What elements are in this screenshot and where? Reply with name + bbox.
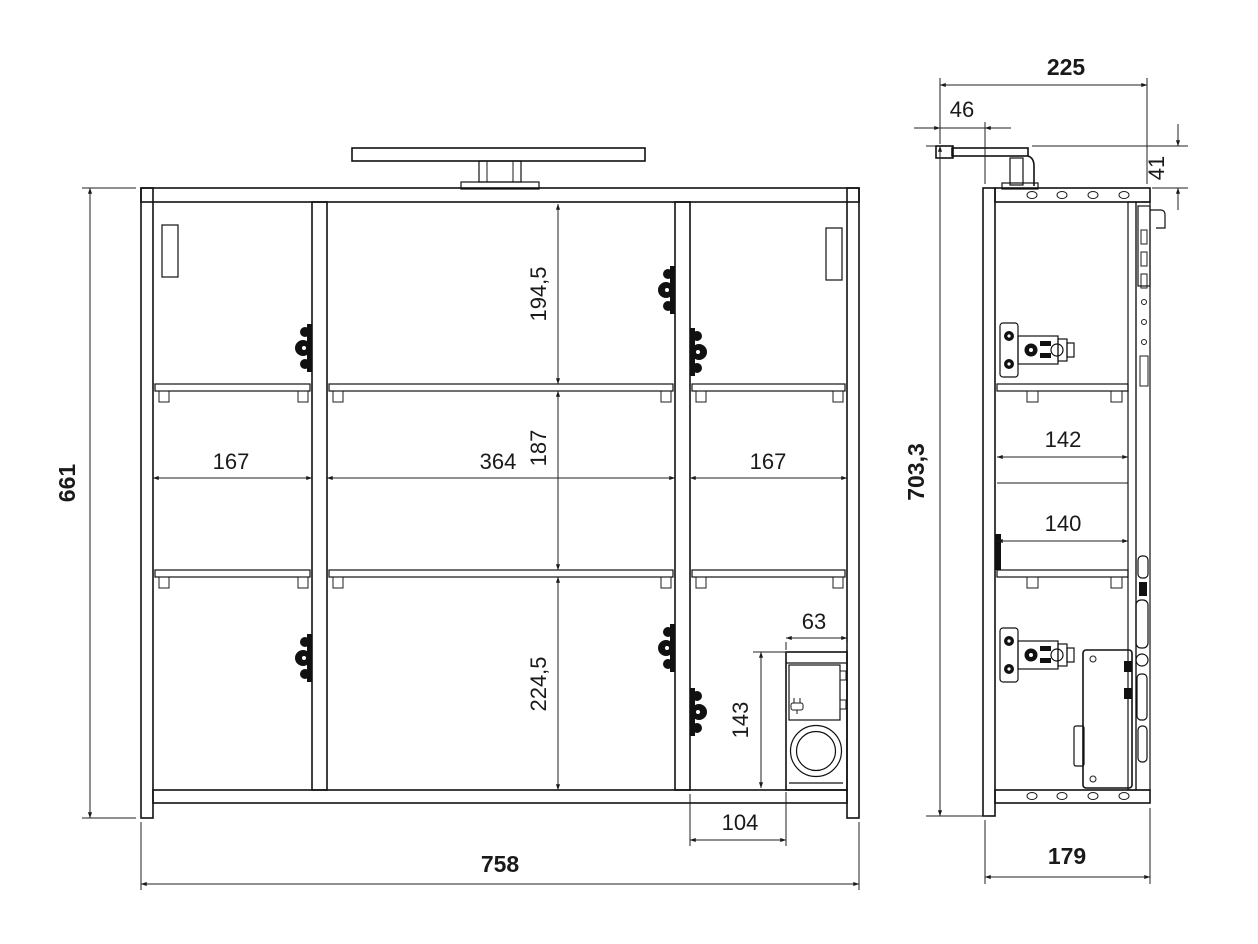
dim-row-top: 194,5 <box>526 204 558 384</box>
wall-bracket-top <box>1138 206 1165 386</box>
dim-socket-height: 143 <box>728 652 788 788</box>
lamp-arm <box>952 148 1028 156</box>
dim-body-depth: 179 <box>985 808 1150 884</box>
side-view: 225 46 41 703,3 142 140 <box>903 54 1188 884</box>
shelf-clip <box>159 577 169 588</box>
shelf-clip <box>696 577 706 588</box>
cabinet-technical-drawing: 194,5 187 224,5 167 364 167 63 <box>0 0 1258 944</box>
lamp-post <box>1010 158 1023 185</box>
dim-label: 224,5 <box>526 656 551 711</box>
shelf-row-upper <box>155 384 845 402</box>
shelf <box>692 384 845 391</box>
shelf <box>329 384 673 391</box>
dim-label: 167 <box>213 449 250 474</box>
dim-lamp-height: 41 <box>1032 124 1188 210</box>
dim-col-right: 167 <box>690 449 847 478</box>
dim-label: 225 <box>1047 54 1086 80</box>
dim-label: 140 <box>1045 511 1082 536</box>
shelf-clip <box>661 391 671 402</box>
dim-label: 194,5 <box>526 266 551 321</box>
dim-total-height: 661 <box>54 188 136 818</box>
dim-lamp-overhang: 46 <box>914 97 1011 184</box>
dim-label: 104 <box>722 810 759 835</box>
magnet-catch <box>995 534 1001 570</box>
dim-label: 143 <box>728 702 753 739</box>
socket-box-front <box>786 652 847 790</box>
shelf <box>155 384 310 391</box>
rail-hole <box>1119 793 1129 800</box>
lamp-plate <box>352 148 645 161</box>
shelf <box>329 570 673 577</box>
dim-row-bottom: 224,5 <box>526 577 558 790</box>
socket-box-outline <box>786 652 847 790</box>
shelf <box>155 570 310 577</box>
left-divider <box>312 202 327 790</box>
top-rail <box>995 188 1150 202</box>
wall-bracket-bottom <box>1136 556 1148 762</box>
shelf-clip <box>298 391 308 402</box>
rail-hole <box>1088 192 1098 199</box>
shelf-clip <box>1111 391 1122 402</box>
top-panel <box>141 188 859 202</box>
shelf <box>997 384 1128 391</box>
shelf-clip <box>298 577 308 588</box>
bottom-panel <box>153 790 847 803</box>
dim-label: 63 <box>802 609 826 634</box>
dim-label: 41 <box>1144 156 1169 180</box>
hinge-icon <box>295 634 312 682</box>
hinge-icon <box>690 328 707 376</box>
shelf-clip <box>661 577 671 588</box>
rail-hole <box>1088 793 1098 800</box>
dim-col-left: 167 <box>153 449 312 478</box>
rail-hole <box>1057 793 1067 800</box>
rail-hole <box>1027 192 1037 199</box>
rail-hole <box>1119 192 1129 199</box>
right-divider <box>675 202 690 790</box>
dim-label: 703,3 <box>903 443 929 501</box>
rail-hole <box>1027 793 1037 800</box>
hinge-icon <box>690 688 707 736</box>
drawing-canvas: 194,5 187 224,5 167 364 167 63 <box>0 0 1258 944</box>
dim-depth-lower: 140 <box>997 511 1128 541</box>
dim-full-height: 703,3 <box>903 146 988 816</box>
wall-fixing-left <box>162 225 178 277</box>
hinge-icon <box>658 266 675 314</box>
lamp-stem <box>479 161 521 182</box>
shelf-clip <box>333 391 343 402</box>
rail-hole <box>1057 192 1067 199</box>
shelf-clip <box>696 391 706 402</box>
power-socket <box>791 726 842 777</box>
hanging-rail-channel <box>1136 202 1150 790</box>
dim-label: 46 <box>950 97 974 122</box>
hinge-icon <box>658 624 675 672</box>
shelf-clip <box>159 391 169 402</box>
shelf-clip <box>1027 577 1038 588</box>
dim-label: 142 <box>1045 427 1082 452</box>
dim-label: 364 <box>480 449 517 474</box>
bottom-rail <box>995 790 1150 803</box>
dim-socket-width: 63 <box>786 609 847 650</box>
hinge-icon <box>295 324 312 372</box>
wall-fixing-right <box>826 228 842 280</box>
dim-depth-upper: 142 <box>997 427 1128 457</box>
lamp-front <box>352 148 645 189</box>
shelf-clip <box>1111 577 1122 588</box>
shelf <box>692 570 845 577</box>
hinge-side <box>1000 628 1074 682</box>
dim-label: 179 <box>1048 843 1086 869</box>
door-profile <box>983 188 995 816</box>
front-view: 194,5 187 224,5 167 364 167 63 <box>54 148 859 890</box>
shelf-clip <box>333 577 343 588</box>
side-carcass <box>983 188 1150 816</box>
shelf-clip <box>1027 391 1038 402</box>
shelf-row-lower <box>155 570 845 588</box>
dim-socket-offset: 104 <box>690 792 786 846</box>
plug-icon <box>791 698 803 714</box>
side-shelves <box>997 384 1128 588</box>
shelf-clip <box>833 391 843 402</box>
lamp-side <box>936 146 1038 189</box>
shelf-clip <box>833 577 843 588</box>
dim-row-mid: 187 <box>526 391 558 570</box>
hinge-side <box>1000 323 1074 377</box>
dim-label: 187 <box>526 430 551 467</box>
dim-col-center: 364 <box>327 449 675 478</box>
lamp-head <box>936 146 953 158</box>
socket-box-side <box>1074 650 1132 788</box>
dim-label: 167 <box>750 449 787 474</box>
dim-label: 758 <box>481 851 520 877</box>
dim-label: 661 <box>54 464 80 503</box>
left-side-panel <box>141 188 153 818</box>
shelf <box>997 570 1128 577</box>
right-side-panel <box>847 188 859 818</box>
